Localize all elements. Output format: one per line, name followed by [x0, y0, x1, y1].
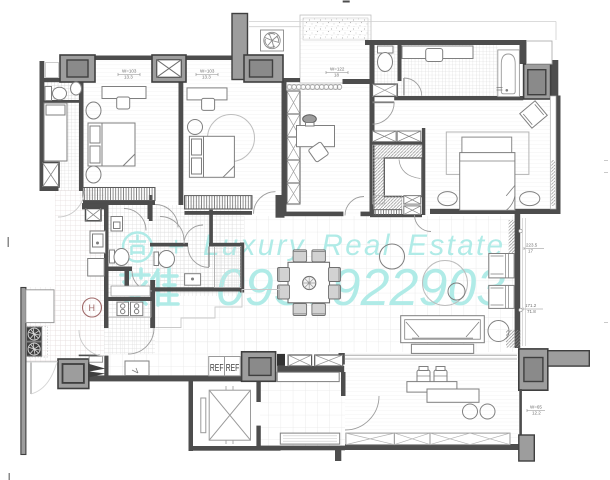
- svg-text:W=103: W=103: [122, 69, 137, 74]
- svg-text:W=103: W=103: [200, 69, 215, 74]
- svg-text:REF: REF: [226, 363, 240, 374]
- svg-text:W=122: W=122: [330, 67, 345, 72]
- svg-text:13.3: 13.3: [202, 75, 211, 80]
- svg-text:REF: REF: [210, 363, 224, 374]
- svg-text:71.8: 71.8: [527, 309, 536, 314]
- svg-text:W=65: W=65: [530, 405, 542, 410]
- svg-text:223.5: 223.5: [526, 243, 538, 248]
- svg-text:Luxury Real Estate: Luxury Real Estate: [203, 229, 505, 262]
- svg-text:H: H: [89, 303, 96, 313]
- svg-text:12.2: 12.2: [532, 411, 541, 416]
- svg-text:17: 17: [528, 249, 534, 254]
- svg-text:171.2: 171.2: [525, 303, 537, 308]
- svg-text:18: 18: [334, 73, 340, 78]
- svg-text:13.3: 13.3: [124, 75, 133, 80]
